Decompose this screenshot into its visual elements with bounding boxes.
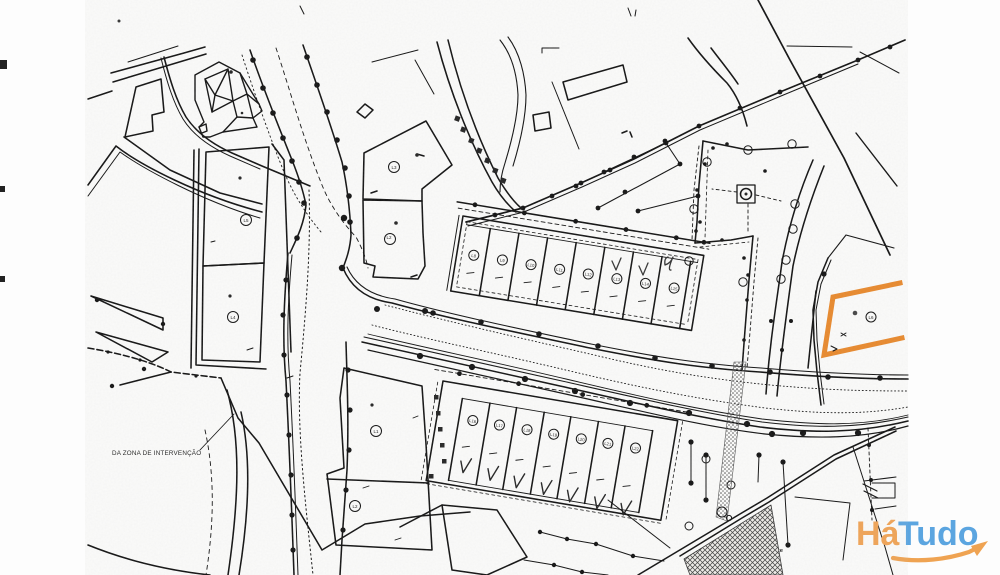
- svg-text:Tudo: Tudo: [898, 515, 979, 553]
